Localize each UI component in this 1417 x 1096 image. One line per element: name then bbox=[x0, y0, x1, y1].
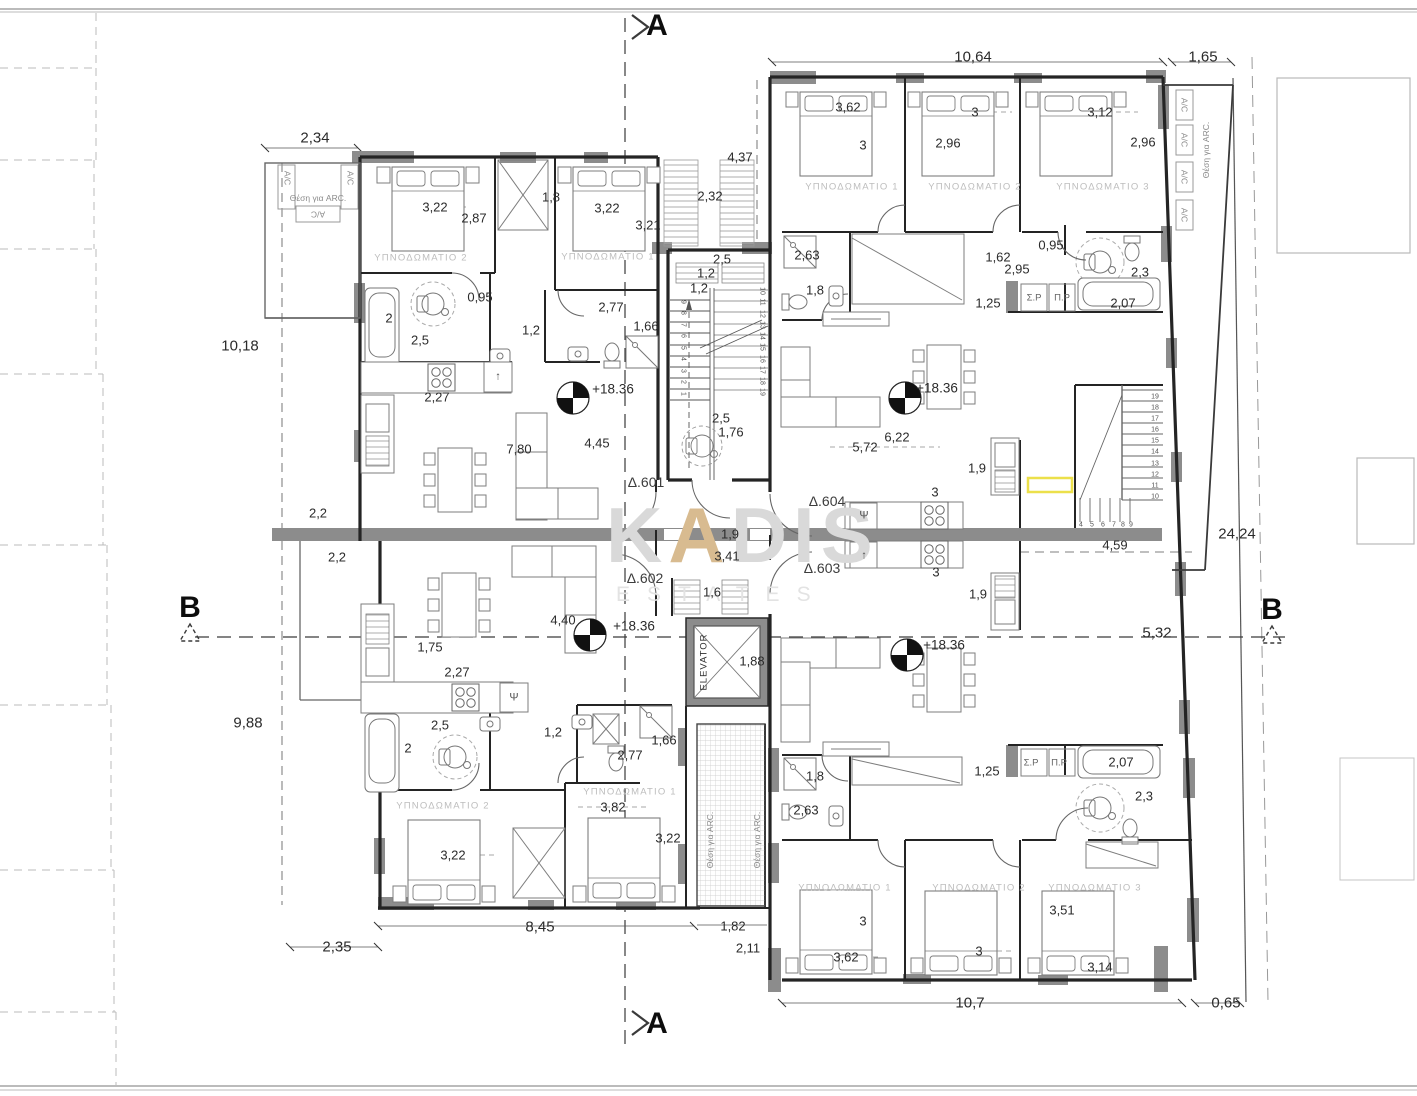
laundry-box bbox=[1021, 284, 1047, 311]
section-arrow-b-right bbox=[1262, 626, 1282, 643]
duplex-staircase bbox=[1080, 385, 1163, 522]
kitchen bbox=[845, 438, 1019, 529]
sofa bbox=[516, 413, 598, 520]
ac-unit bbox=[1176, 90, 1193, 120]
laundry-box bbox=[1049, 284, 1075, 311]
wardrobe bbox=[498, 160, 548, 230]
ac-unit bbox=[296, 206, 340, 222]
wardrobe bbox=[513, 828, 565, 898]
closet bbox=[852, 757, 962, 785]
section-arrow-b-left bbox=[180, 624, 200, 641]
laundry-box bbox=[1021, 749, 1047, 776]
kitchen bbox=[845, 541, 1019, 630]
laundry-box bbox=[1049, 749, 1075, 776]
section-arrow-a-top bbox=[632, 15, 648, 39]
ac-unit bbox=[1176, 125, 1193, 155]
closet bbox=[852, 234, 964, 304]
lightwell-louver bbox=[664, 160, 698, 246]
apartment-601-furniture bbox=[361, 160, 848, 520]
ac-unit bbox=[1176, 200, 1193, 230]
floor-plan-page: KADIS ESTATES 10,641,652,3410,189,8824,2… bbox=[0, 0, 1417, 1096]
floor-plan-drawing bbox=[0, 0, 1417, 1096]
sofa bbox=[781, 347, 880, 427]
elevator bbox=[674, 580, 768, 706]
ac-unit bbox=[341, 165, 358, 209]
closet bbox=[593, 714, 619, 744]
closet bbox=[1086, 842, 1158, 868]
section-arrow-a-bottom bbox=[632, 1011, 648, 1035]
sofa bbox=[781, 638, 880, 742]
ac-unit bbox=[278, 165, 295, 209]
site-boundaries bbox=[0, 9, 1417, 1090]
kitchen bbox=[361, 362, 512, 473]
highlight-box bbox=[1028, 478, 1072, 492]
apartment-603-furniture bbox=[781, 541, 1160, 975]
main-staircase bbox=[664, 160, 768, 480]
apartment-604-furniture bbox=[781, 92, 1163, 529]
service-shaft bbox=[697, 724, 765, 906]
lightwell-louver bbox=[720, 160, 754, 246]
ac-unit bbox=[1176, 162, 1193, 192]
